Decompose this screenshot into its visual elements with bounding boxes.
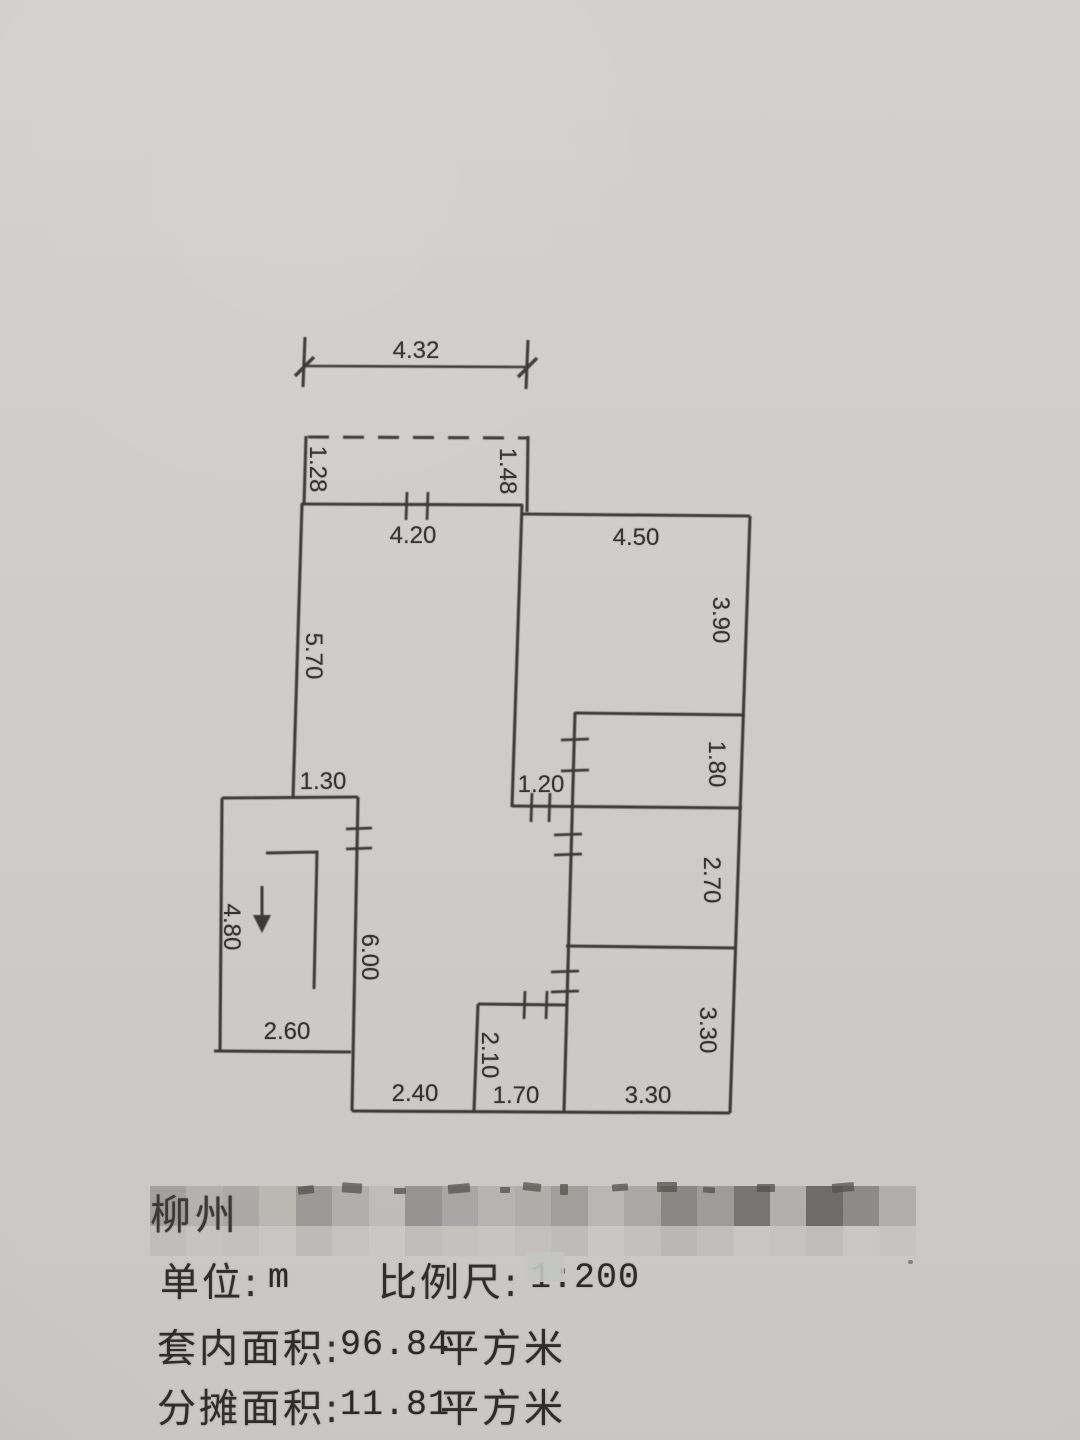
dim-top-overall: 4.32: [393, 339, 440, 363]
address-glyph-fragment: [657, 1182, 677, 1192]
mosaic-block: [296, 1226, 332, 1256]
window-stair-wall-tick: [346, 828, 372, 829]
mosaic-block: [551, 1186, 587, 1226]
mosaic-block: [332, 1226, 368, 1256]
wall-top-left-section: [301, 504, 523, 505]
scale-redaction-block: [527, 1252, 564, 1282]
balcony-wall-right: [527, 436, 528, 512]
floor-plan-photo: 4.32 1.28 1.48 4.20 4.50 5.70 3.90 1.80 …: [0, 0, 1080, 1440]
window-mid-lower-tick: [551, 971, 579, 972]
dim-room3-width: 3.30: [625, 1084, 672, 1108]
mosaic-block: [515, 1186, 551, 1226]
unit-label: 单位:: [160, 1252, 260, 1308]
dim-left-lower: 6.00: [357, 934, 381, 981]
wall-horizontal-2-70: [566, 946, 735, 948]
wall-top-right-section: [522, 514, 750, 516]
wall-divider-center: [512, 505, 522, 807]
unit-value: m: [268, 1258, 290, 1298]
window-top-wall-tick: [406, 492, 407, 520]
mosaic-block: [478, 1226, 514, 1256]
mosaic-block: [588, 1186, 624, 1226]
window-mid-lower-tick: [551, 991, 579, 992]
dim-living-top: 4.20: [390, 524, 437, 548]
mosaic-block: [770, 1226, 806, 1256]
address-glyph-fragment: [832, 1182, 855, 1193]
stair-symbol: [253, 852, 317, 989]
dim-bath-height: 2.10: [477, 1032, 501, 1079]
dim-closet-height: 1.80: [704, 741, 728, 788]
inner-area-number: 96.84: [340, 1325, 450, 1365]
stair-path-line: [266, 852, 317, 989]
mosaic-block: [405, 1226, 441, 1256]
mosaic-block: [624, 1226, 660, 1256]
address-glyph-fragment: [342, 1182, 363, 1193]
dim-right-upper: 3.90: [708, 597, 732, 644]
window-closet-wall-tick: [561, 770, 589, 771]
wall-bottom: [352, 1111, 730, 1113]
address-redaction-row-1: [150, 1186, 916, 1226]
mosaic-block: [697, 1226, 733, 1256]
stair-arrow-head: [253, 915, 271, 933]
wall-stair-top: [222, 797, 358, 798]
mosaic-block: [442, 1226, 478, 1256]
mosaic-block: [588, 1226, 624, 1256]
address-glyph-fragment: [560, 1184, 568, 1195]
dim-stair-width: 2.60: [264, 1020, 311, 1044]
address-glyph-fragment: [394, 1188, 406, 1194]
dim-stair-height: 4.80: [219, 904, 243, 951]
window-mid-upper-tick: [554, 834, 582, 835]
wall-closet-top: [575, 713, 745, 715]
shared-area-unit: 平方米: [440, 1378, 566, 1434]
inner-area-unit: 平方米: [440, 1318, 566, 1374]
wall-bath-top: [478, 1004, 566, 1005]
dim-extension-left: [303, 337, 305, 387]
dim-bedroom-top: 4.50: [613, 526, 660, 550]
dim-balcony-left: 1.28: [305, 446, 329, 493]
wall-horizontal-1-20: [512, 806, 742, 808]
window-stair-wall-tick: [346, 848, 372, 849]
address-visible-text: 柳州: [150, 1181, 240, 1241]
address-glyph-fragment: [298, 1185, 315, 1195]
mosaic-block: [661, 1186, 697, 1226]
mosaic-block: [661, 1226, 697, 1256]
mosaic-block: [259, 1226, 295, 1256]
dim-entry-width: 1.30: [300, 770, 347, 794]
address-glyph-fragment: [612, 1183, 628, 1191]
dim-opening-width: 1.20: [518, 773, 565, 797]
dim-left-upper: 5.70: [301, 633, 325, 680]
paper-speck: [908, 1260, 913, 1264]
mosaic-block: [369, 1226, 405, 1256]
mosaic-block: [259, 1186, 295, 1226]
mosaic-block: [843, 1226, 879, 1256]
scale-label: 比例尺:: [378, 1252, 520, 1308]
wall-stair-bottom: [214, 1051, 351, 1052]
dim-room2-height: 2.70: [699, 857, 723, 904]
address-glyph-fragment: [703, 1186, 715, 1193]
mosaic-block: [770, 1186, 806, 1226]
mosaic-block: [405, 1186, 441, 1226]
mosaic-block: [879, 1186, 915, 1226]
plan-linework: [214, 337, 750, 1113]
dim-balcony-right: 1.48: [495, 448, 519, 495]
inner-area-label: 套内面积:: [157, 1318, 341, 1374]
window-bath-tick: [546, 991, 547, 1019]
mosaic-block: [624, 1186, 660, 1226]
balcony-dashed-line: [308, 437, 527, 438]
shared-area-number: 11.81: [340, 1385, 450, 1425]
dim-extension-right: [526, 340, 528, 389]
address-glyph-fragment: [757, 1184, 775, 1192]
dim-bath-width: 1.70: [493, 1084, 540, 1108]
shared-area-label: 分摊面积:: [157, 1378, 341, 1434]
mosaic-block: [734, 1226, 770, 1256]
mosaic-block: [879, 1226, 915, 1256]
window-top-wall-tick: [427, 492, 428, 520]
dim-bottom-left: 2.40: [392, 1082, 439, 1106]
mosaic-block: [843, 1186, 879, 1226]
address-glyph-fragment: [448, 1183, 471, 1194]
mosaic-block: [734, 1186, 770, 1226]
address-glyph-fragment: [500, 1187, 510, 1193]
window-mid-upper-tick: [554, 854, 582, 855]
dim-room3-height: 3.30: [695, 1007, 719, 1054]
dim-line-top: [303, 366, 528, 367]
mosaic-block: [806, 1226, 842, 1256]
window-closet-wall-tick: [561, 739, 589, 740]
window-bath-tick: [524, 991, 525, 1019]
